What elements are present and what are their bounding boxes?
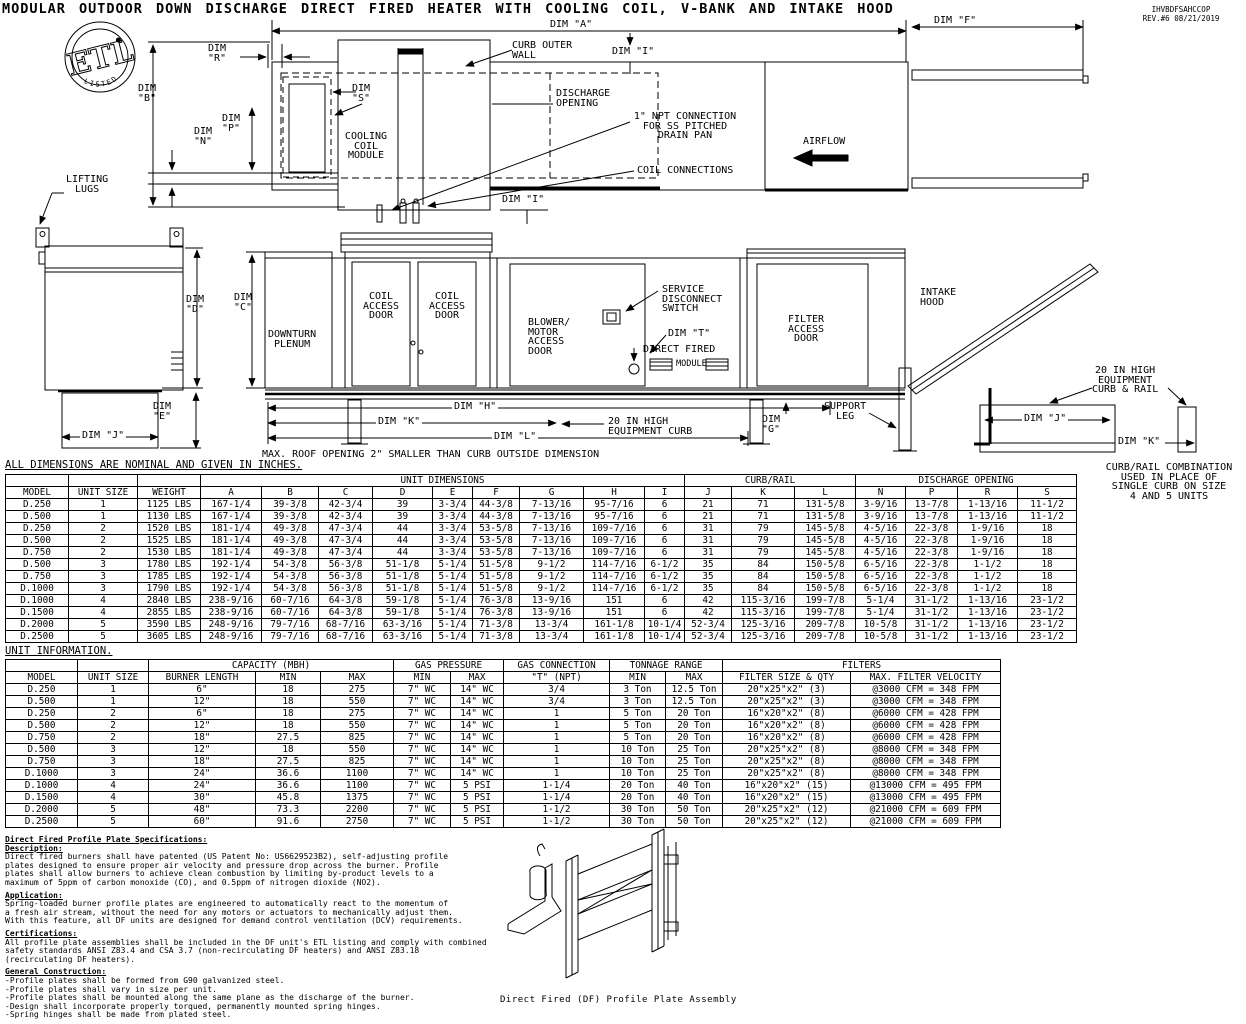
- table-cell: @3000 CFM = 348 FPM: [851, 696, 1001, 708]
- table-cell: 7" WC: [394, 756, 451, 768]
- table-cell: 56-3/8: [319, 583, 373, 595]
- table-cell: 2: [78, 732, 149, 744]
- table-cell: 30": [149, 792, 256, 804]
- table-cell: 125-3/16: [732, 631, 795, 643]
- empty-header-cell: [138, 475, 201, 487]
- table-cell: 84: [732, 571, 795, 583]
- table-cell: 18": [149, 732, 256, 744]
- table-cell: 1: [504, 720, 610, 732]
- table-cell: 1-9/16: [958, 547, 1018, 559]
- table-cell: 14" WC: [451, 744, 504, 756]
- table-cell: 3 Ton: [610, 696, 666, 708]
- table-cell: 5-1/4: [433, 607, 473, 619]
- table-cell: 14" WC: [451, 684, 504, 696]
- table-cell: D.750: [6, 547, 69, 559]
- table-cell: 54-3/8: [262, 583, 319, 595]
- table-cell: 9-1/2: [520, 583, 584, 595]
- table-cell: D.500: [6, 696, 78, 708]
- table-row: D.750218"27.58257" WC14" WC15 Ton20 Ton1…: [6, 732, 1001, 744]
- table-cell: 161-1/8: [584, 631, 645, 643]
- table-cell: 1: [78, 696, 149, 708]
- table-cell: 22-3/8: [906, 583, 958, 595]
- table-cell: 1525 LBS: [138, 535, 201, 547]
- table-cell: 275: [321, 708, 394, 720]
- service-disconnect-switch-label: SERVICE DISCONNECT SWITCH: [662, 285, 722, 314]
- table-cell: 52-3/4: [685, 631, 732, 643]
- table-cell: @13000 CFM = 495 FPM: [851, 792, 1001, 804]
- table-cell: 23-1/2: [1018, 607, 1077, 619]
- table-cell: 6: [645, 499, 685, 511]
- table-cell: 56-3/8: [319, 559, 373, 571]
- table-cell: 7" WC: [394, 816, 451, 828]
- nominal-dimensions-note: ALL DIMENSIONS ARE NOMINAL AND GIVEN IN …: [5, 461, 302, 471]
- table-cell: 25 Ton: [666, 744, 723, 756]
- table-cell: 5 Ton: [610, 732, 666, 744]
- table-cell: 51-5/8: [473, 559, 520, 571]
- certifications-body: All profile plate assemblies shall be in…: [5, 939, 507, 965]
- cooling-coil-module-label: COOLING COIL MODULE: [341, 132, 391, 161]
- table-cell: 1: [504, 756, 610, 768]
- table-cell: 5-1/4: [856, 595, 906, 607]
- table-cell: 1790 LBS: [138, 583, 201, 595]
- table-cell: 6: [645, 547, 685, 559]
- table-cell: @6000 CFM = 428 FPM: [851, 708, 1001, 720]
- table-cell: 192-1/4: [201, 559, 262, 571]
- gas-connection-group-header: GAS CONNECTION: [504, 660, 610, 672]
- curb-rail-detail-linework: [980, 388, 1196, 452]
- table-cell: 550: [321, 696, 394, 708]
- table-cell: 199-7/8: [795, 607, 856, 619]
- column-header: MAX: [321, 672, 394, 684]
- table-cell: 22-3/8: [906, 523, 958, 535]
- table-cell: 53-5/8: [473, 535, 520, 547]
- table-cell: 3-3/4: [433, 523, 473, 535]
- table-cell: 114-7/16: [584, 571, 645, 583]
- table-cell: 18": [149, 756, 256, 768]
- table-cell: 60-7/16: [262, 595, 319, 607]
- table-cell: 3: [78, 744, 149, 756]
- table-cell: 44-3/8: [473, 511, 520, 523]
- column-header: L: [795, 487, 856, 499]
- table-cell: @8000 CFM = 348 FPM: [851, 768, 1001, 780]
- table-cell: 44-3/8: [473, 499, 520, 511]
- table-cell: 199-7/8: [795, 595, 856, 607]
- table-cell: 60-7/16: [262, 607, 319, 619]
- table-cell: 2840 LBS: [138, 595, 201, 607]
- table-cell: D.500: [6, 720, 78, 732]
- table-row: D.500312"185507" WC14" WC110 Ton25 Ton20…: [6, 744, 1001, 756]
- table-cell: 6": [149, 684, 256, 696]
- table-cell: 49-3/8: [262, 547, 319, 559]
- table-cell: 5: [78, 816, 149, 828]
- table-cell: 5 Ton: [610, 708, 666, 720]
- table-cell: 825: [321, 732, 394, 744]
- table-cell: 14" WC: [451, 756, 504, 768]
- table-cell: 30 Ton: [610, 804, 666, 816]
- table-cell: 18: [1018, 571, 1077, 583]
- dim-j-front-label: DIM "J": [80, 431, 126, 441]
- table-cell: 14" WC: [451, 708, 504, 720]
- column-header-row: MODEL UNIT SIZE WEIGHT A B C D E F G H I…: [6, 487, 1077, 499]
- npt-connection-label: 1" NPT CONNECTION FOR SS PITCHED DRAIN P…: [630, 112, 740, 141]
- table-row: D.100042840 LBS238-9/1660-7/1664-3/859-1…: [6, 595, 1077, 607]
- column-header: A: [201, 487, 262, 499]
- table-cell: 131-5/8: [795, 499, 856, 511]
- table-row: D.500112"185507" WC14" WC3/43 Ton12.5 To…: [6, 696, 1001, 708]
- table-cell: 39: [373, 511, 433, 523]
- table-cell: 21: [685, 511, 732, 523]
- table-cell: 1-1/2: [958, 571, 1018, 583]
- table-cell: 3: [69, 571, 138, 583]
- table-row: D.1500430"45.813757" WC5 PSI1-1/420 Ton4…: [6, 792, 1001, 804]
- table-cell: 36.6: [256, 780, 321, 792]
- table-cell: 59-1/8: [373, 595, 433, 607]
- table-cell: 1785 LBS: [138, 571, 201, 583]
- table-cell: 2: [69, 535, 138, 547]
- table-cell: 73.3: [256, 804, 321, 816]
- table-cell: D.750: [6, 732, 78, 744]
- table-cell: D.1000: [6, 595, 69, 607]
- column-header: I: [645, 487, 685, 499]
- table-cell: 20"x25"x2" (8): [723, 768, 851, 780]
- table-cell: 40 Ton: [666, 792, 723, 804]
- table-cell: 7" WC: [394, 792, 451, 804]
- group-header-row: UNIT DIMENSIONS CURB/RAIL DISCHARGE OPEN…: [6, 475, 1077, 487]
- table-cell: 16"x20"x2" (8): [723, 708, 851, 720]
- table-cell: 1: [78, 684, 149, 696]
- table-cell: 14" WC: [451, 768, 504, 780]
- table-cell: 2: [69, 547, 138, 559]
- table-cell: 145-5/8: [795, 547, 856, 559]
- table-row: D.2000548"73.322007" WC5 PSI1-1/230 Ton5…: [6, 804, 1001, 816]
- column-header: WEIGHT: [138, 487, 201, 499]
- column-header: J: [685, 487, 732, 499]
- table-cell: 3-3/4: [433, 535, 473, 547]
- table-cell: 7-13/16: [520, 499, 584, 511]
- table-cell: 20"x25"x2" (3): [723, 696, 851, 708]
- table-cell: 63-3/16: [373, 619, 433, 631]
- table-cell: 5-1/4: [433, 583, 473, 595]
- table-row: D.1000424"36.611007" WC5 PSI1-1/420 Ton4…: [6, 780, 1001, 792]
- table-cell: 35: [685, 559, 732, 571]
- table-cell: 31-1/2: [906, 619, 958, 631]
- table-cell: 54-3/8: [262, 571, 319, 583]
- table-cell: 27.5: [256, 756, 321, 768]
- table-cell: 23-1/2: [1018, 619, 1077, 631]
- table-cell: 20"x25"x2" (8): [723, 756, 851, 768]
- table-cell: 1-13/16: [958, 607, 1018, 619]
- discharge-opening-label: DISCHARGE OPENING: [556, 89, 610, 108]
- table-cell: 1-9/16: [958, 523, 1018, 535]
- table-cell: D.500: [6, 511, 69, 523]
- table-cell: 1530 LBS: [138, 547, 201, 559]
- table-cell: 22-3/8: [906, 571, 958, 583]
- table-cell: 13-7/8: [906, 511, 958, 523]
- dim-a-label: DIM "A": [548, 20, 594, 30]
- table-cell: 47-3/4: [319, 547, 373, 559]
- column-header: S: [1018, 487, 1077, 499]
- column-header: D: [373, 487, 433, 499]
- table-row: D.25016"182757" WC14" WC3/43 Ton12.5 Ton…: [6, 684, 1001, 696]
- column-header: G: [520, 487, 584, 499]
- table-cell: 7-13/16: [520, 547, 584, 559]
- table-cell: 44: [373, 547, 433, 559]
- table-cell: 238-9/16: [201, 595, 262, 607]
- column-header: MAX. FILTER VELOCITY: [851, 672, 1001, 684]
- table-cell: 51-5/8: [473, 583, 520, 595]
- empty-header-cell: [6, 660, 78, 672]
- table-cell: 36.6: [256, 768, 321, 780]
- table-cell: 248-9/16: [201, 619, 262, 631]
- column-header: FILTER SIZE & QTY: [723, 672, 851, 684]
- table-cell: 5-1/4: [856, 607, 906, 619]
- column-header: MODEL: [6, 672, 78, 684]
- table-cell: 1-1/2: [504, 804, 610, 816]
- table-cell: 209-7/8: [795, 631, 856, 643]
- table-cell: 4-5/16: [856, 547, 906, 559]
- table-cell: 181-1/4: [201, 547, 262, 559]
- table-cell: 3-9/16: [856, 499, 906, 511]
- table-cell: 20 Ton: [610, 792, 666, 804]
- table-cell: 1130 LBS: [138, 511, 201, 523]
- table-cell: 3: [69, 559, 138, 571]
- table-cell: 39: [373, 499, 433, 511]
- table-cell: 23-1/2: [1018, 631, 1077, 643]
- table-cell: 5: [69, 631, 138, 643]
- table-cell: 238-9/16: [201, 607, 262, 619]
- column-header: MIN: [610, 672, 666, 684]
- roof-opening-note: MAX. ROOF OPENING 2" SMALLER THAN CURB O…: [262, 450, 599, 460]
- table-cell: @8000 CFM = 348 FPM: [851, 744, 1001, 756]
- table-cell: 14" WC: [451, 732, 504, 744]
- column-header: E: [433, 487, 473, 499]
- table-cell: 7" WC: [394, 744, 451, 756]
- table-cell: 31-1/2: [906, 631, 958, 643]
- table-cell: 6: [645, 595, 685, 607]
- column-header: UNIT SIZE: [69, 487, 138, 499]
- table-cell: 11-1/2: [1018, 511, 1077, 523]
- table-cell: 3: [78, 768, 149, 780]
- table-cell: 84: [732, 559, 795, 571]
- table-row: D.250053605 LBS248-9/1679-7/1668-7/1663-…: [6, 631, 1077, 643]
- table-cell: 5-1/4: [433, 559, 473, 571]
- module-label: MODULE: [676, 360, 707, 370]
- table-cell: 23-1/2: [1018, 595, 1077, 607]
- table-cell: 22-3/8: [906, 547, 958, 559]
- dim-t-label: DIM "T": [668, 329, 710, 339]
- dim-n-label: DIM "N": [194, 127, 212, 146]
- table-cell: 18: [1018, 523, 1077, 535]
- table-cell: 6-1/2: [645, 571, 685, 583]
- gas-pressure-group-header: GAS PRESSURE: [394, 660, 504, 672]
- table-cell: 167-1/4: [201, 499, 262, 511]
- table-cell: 20"x25"x2" (8): [723, 744, 851, 756]
- table-cell: 20"x25"x2" (3): [723, 684, 851, 696]
- column-header: "T" (NPT): [504, 672, 610, 684]
- table-cell: 109-7/16: [584, 535, 645, 547]
- table-cell: 3-3/4: [433, 547, 473, 559]
- table-cell: 7-13/16: [520, 523, 584, 535]
- table-cell: 25 Ton: [666, 756, 723, 768]
- front-view-linework: [36, 228, 203, 448]
- table-cell: 31: [685, 535, 732, 547]
- tonnage-group-header: TONNAGE RANGE: [610, 660, 723, 672]
- table-cell: 5-1/4: [433, 571, 473, 583]
- table-cell: 1-1/2: [958, 559, 1018, 571]
- table-cell: 18: [256, 744, 321, 756]
- table-cell: 49-3/8: [262, 535, 319, 547]
- table-cell: 42-3/4: [319, 499, 373, 511]
- table-cell: 10 Ton: [610, 768, 666, 780]
- curb-rail-group-header: CURB/RAIL: [685, 475, 856, 487]
- table-cell: 71-3/8: [473, 631, 520, 643]
- table-cell: 151: [584, 607, 645, 619]
- table-cell: 3: [78, 756, 149, 768]
- table-cell: 1-13/16: [958, 595, 1018, 607]
- table-cell: 3605 LBS: [138, 631, 201, 643]
- table-cell: D.2500: [6, 816, 78, 828]
- column-header: UNIT SIZE: [78, 672, 149, 684]
- table-cell: 7" WC: [394, 684, 451, 696]
- table-cell: 6-5/16: [856, 583, 906, 595]
- table-cell: 1125 LBS: [138, 499, 201, 511]
- table-cell: 10-1/4: [645, 619, 685, 631]
- table-cell: 10-5/8: [856, 619, 906, 631]
- column-header: MIN: [394, 672, 451, 684]
- table-cell: 181-1/4: [201, 535, 262, 547]
- table-cell: 1-13/16: [958, 631, 1018, 643]
- table-cell: 16"x20"x2" (8): [723, 720, 851, 732]
- dim-j-detail-label: DIM "J": [1022, 414, 1068, 424]
- table-cell: 5 PSI: [451, 804, 504, 816]
- discharge-opening-group-header: DISCHARGE OPENING: [856, 475, 1077, 487]
- table-cell: @21000 CFM = 609 FPM: [851, 816, 1001, 828]
- specs-heading: Direct Fired Profile Plate Specification…: [5, 836, 507, 845]
- curb-outer-wall-label: CURB OUTER WALL: [512, 41, 572, 60]
- unit-dimensions-table: UNIT DIMENSIONS CURB/RAIL DISCHARGE OPEN…: [5, 474, 1076, 643]
- table-cell: 1-13/16: [958, 619, 1018, 631]
- table-cell: 68-7/16: [319, 619, 373, 631]
- table-cell: 25 Ton: [666, 768, 723, 780]
- table-cell: 5-1/4: [433, 631, 473, 643]
- dim-f-label: DIM "F": [932, 16, 978, 26]
- table-cell: 7" WC: [394, 804, 451, 816]
- table-cell: D.750: [6, 756, 78, 768]
- table-cell: 1: [69, 511, 138, 523]
- table-cell: @13000 CFM = 495 FPM: [851, 780, 1001, 792]
- table-cell: 4-5/16: [856, 523, 906, 535]
- column-header: R: [958, 487, 1018, 499]
- table-cell: 21: [685, 499, 732, 511]
- table-cell: 7" WC: [394, 732, 451, 744]
- airflow-arrow: [794, 150, 848, 166]
- unit-dimensions-group-header: UNIT DIMENSIONS: [201, 475, 685, 487]
- downturn-plenum-label: DOWNTURN PLENUM: [268, 330, 316, 349]
- dim-k-side-label: DIM "K": [376, 417, 422, 427]
- table-cell: 7" WC: [394, 780, 451, 792]
- dim-s-label: DIM "S": [352, 84, 370, 103]
- table-cell: 1-1/2: [958, 583, 1018, 595]
- table-cell: 68-7/16: [319, 631, 373, 643]
- table-cell: 24": [149, 780, 256, 792]
- table-cell: 18: [256, 720, 321, 732]
- table-cell: D.2000: [6, 619, 69, 631]
- table-cell: 18: [1018, 535, 1077, 547]
- table-cell: 1-1/4: [504, 780, 610, 792]
- table-cell: 18: [256, 684, 321, 696]
- table-cell: 45.8: [256, 792, 321, 804]
- column-header: MAX: [451, 672, 504, 684]
- dim-l-label: DIM "L": [492, 432, 538, 442]
- table-cell: 2: [78, 708, 149, 720]
- table-cell: 151: [584, 595, 645, 607]
- table-cell: 3-9/16: [856, 511, 906, 523]
- coil-connections-label: COIL CONNECTIONS: [637, 166, 733, 176]
- spec-sheet: MODULAR OUTDOOR DOWN DISCHARGE DIRECT FI…: [0, 0, 1246, 1024]
- table-cell: 42: [685, 607, 732, 619]
- table-cell: 13-9/16: [520, 595, 584, 607]
- table-cell: 6-1/2: [645, 583, 685, 595]
- table-cell: 18: [1018, 559, 1077, 571]
- table-cell: D.250: [6, 708, 78, 720]
- table-cell: 1-1/4: [504, 792, 610, 804]
- table-cell: 6-5/16: [856, 559, 906, 571]
- table-cell: D.250: [6, 684, 78, 696]
- table-cell: 109-7/16: [584, 547, 645, 559]
- table-cell: 192-1/4: [201, 571, 262, 583]
- table-cell: 47-3/4: [319, 523, 373, 535]
- table-cell: 16"x20"x2" (8): [723, 732, 851, 744]
- profile-plate-specifications: Direct Fired Profile Plate Specification…: [5, 836, 507, 1024]
- table-cell: D.750: [6, 571, 69, 583]
- table-cell: 5 Ton: [610, 720, 666, 732]
- table-cell: 6: [645, 607, 685, 619]
- coil-access-door-1-label: COIL ACCESS DOOR: [356, 292, 406, 321]
- table-cell: 4: [69, 607, 138, 619]
- table-cell: @6000 CFM = 428 FPM: [851, 732, 1001, 744]
- description-body: Direct fired burners shall have patented…: [5, 853, 507, 887]
- figure-caption: Direct Fired (DF) Profile Plate Assembly: [500, 995, 737, 1005]
- table-cell: 4: [78, 792, 149, 804]
- empty-header-cell: [6, 475, 69, 487]
- column-header: K: [732, 487, 795, 499]
- table-cell: 4: [78, 780, 149, 792]
- empty-header-cell: [69, 475, 138, 487]
- dim-h-label: DIM "H": [452, 402, 498, 412]
- table-cell: 10-5/8: [856, 631, 906, 643]
- construction-body: -Profile plates shall be formed from G90…: [5, 977, 507, 1020]
- table-cell: 13-3/4: [520, 631, 584, 643]
- table-cell: 31-1/2: [906, 595, 958, 607]
- table-cell: 1-13/16: [958, 499, 1018, 511]
- dim-e-label: DIM "E": [153, 402, 171, 421]
- table-row: D.200053590 LBS248-9/1679-7/1668-7/1663-…: [6, 619, 1077, 631]
- equipment-curb-20-label: 20 IN HIGH EQUIPMENT CURB: [608, 417, 692, 436]
- table-cell: 125-3/16: [732, 619, 795, 631]
- table-cell: 79-7/16: [262, 631, 319, 643]
- table-row: D.50021525 LBS181-1/449-3/847-3/4443-3/4…: [6, 535, 1077, 547]
- table-cell: 5: [78, 804, 149, 816]
- table-cell: 6: [645, 511, 685, 523]
- table-cell: 20 Ton: [666, 720, 723, 732]
- table-row: D.25011125 LBS167-1/439-3/842-3/4393-3/4…: [6, 499, 1077, 511]
- direct-fired-label: DIRECT FIRED: [643, 345, 715, 355]
- table-cell: 18: [1018, 583, 1077, 595]
- table-cell: 2: [78, 720, 149, 732]
- column-header: MAX: [666, 672, 723, 684]
- table-row: D.25021520 LBS181-1/449-3/847-3/4443-3/4…: [6, 523, 1077, 535]
- table-cell: 6-1/2: [645, 559, 685, 571]
